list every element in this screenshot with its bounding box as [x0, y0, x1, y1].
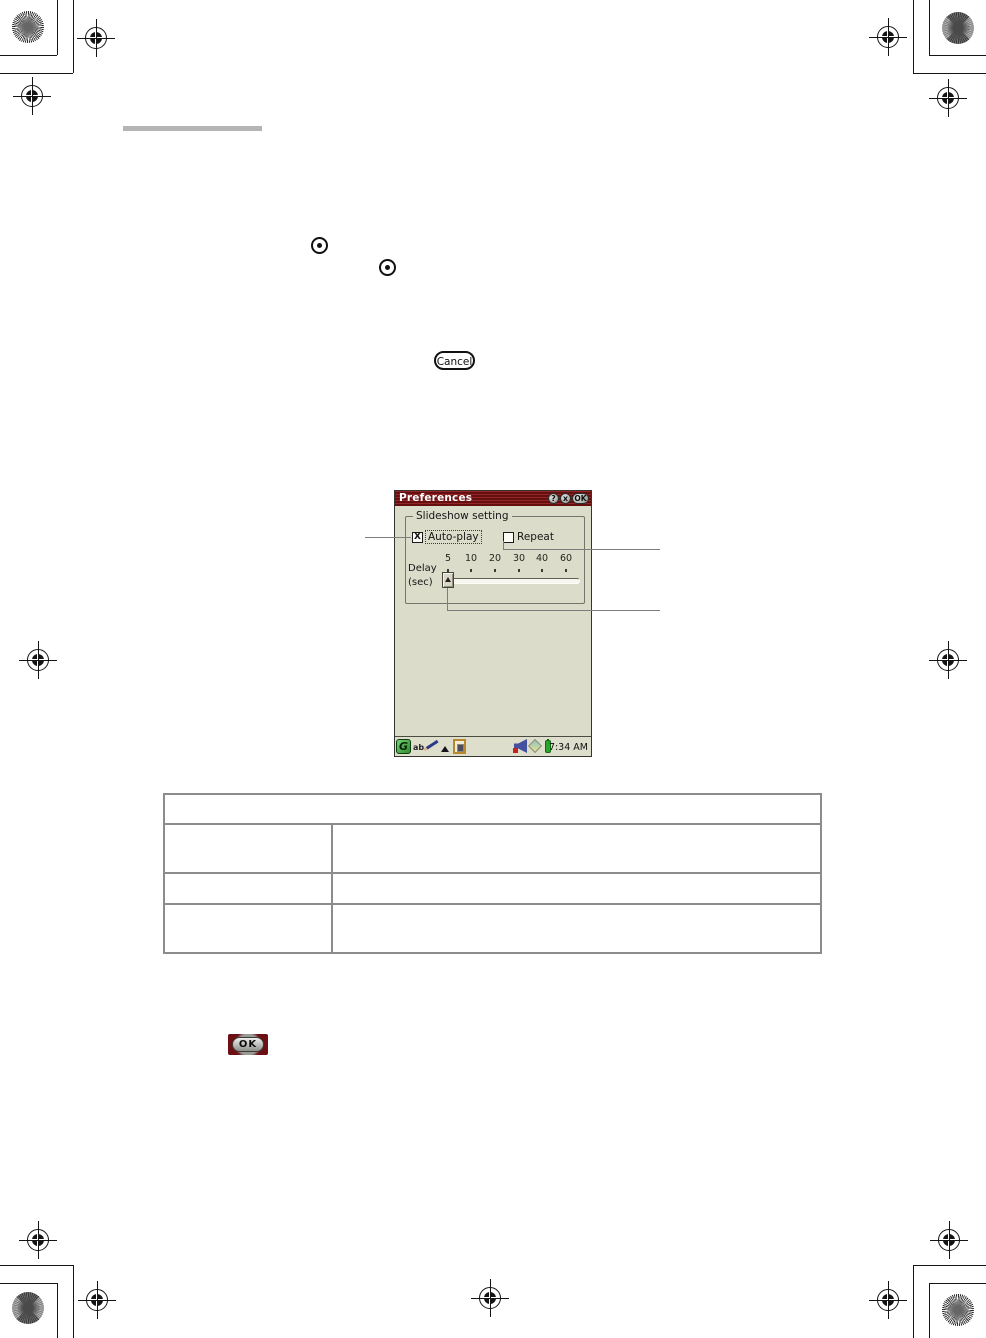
crop-mark — [0, 73, 73, 74]
autoplay-checkbox[interactable]: X — [412, 532, 423, 543]
autoplay-label[interactable]: Auto-play — [425, 530, 482, 544]
callout-line-repeat — [503, 549, 660, 550]
callout-line-slider — [447, 588, 448, 611]
crop-mark — [57, 1283, 58, 1338]
table-row — [165, 905, 820, 952]
callout-line-autoplay — [365, 537, 411, 538]
registration-mark — [869, 1281, 907, 1319]
manual-page: Cancel Preferences ? x OK Slideshow sett… — [0, 0, 986, 1338]
slider-tick — [518, 569, 520, 572]
crop-mark — [0, 1265, 73, 1266]
table-row — [165, 874, 820, 905]
delay-label: Delay — [408, 563, 437, 574]
section-heading-rule — [123, 126, 262, 131]
repeat-checkbox[interactable] — [503, 532, 514, 543]
group-label: Slideshow setting — [413, 510, 512, 522]
tick-label: 30 — [513, 553, 525, 564]
crop-mark — [913, 73, 986, 74]
registration-mark — [77, 19, 115, 57]
crop-mark — [73, 0, 74, 73]
menu-arrow-icon[interactable] — [441, 746, 449, 752]
registration-mark — [930, 1221, 968, 1259]
table-cell — [165, 825, 333, 872]
crop-mark — [0, 1283, 57, 1284]
slider-tick — [470, 569, 472, 572]
dialog-ok-button[interactable]: OK — [572, 493, 589, 504]
registration-mark — [78, 1281, 116, 1319]
slider-tick — [565, 569, 567, 572]
crop-mark — [57, 0, 58, 55]
crop-mark — [73, 1265, 74, 1338]
crop-mark — [929, 1283, 986, 1284]
close-icon[interactable]: x — [560, 493, 571, 504]
reference-table — [163, 793, 822, 954]
table-cell — [333, 874, 820, 903]
registration-mark — [929, 79, 967, 117]
color-calibration-mark — [942, 12, 974, 44]
crop-mark — [929, 1283, 930, 1338]
pen-icon[interactable] — [423, 740, 438, 751]
table-cell — [333, 905, 820, 952]
delay-slider-thumb[interactable] — [442, 572, 454, 588]
help-icon[interactable]: ? — [548, 493, 559, 504]
crop-mark — [913, 1265, 914, 1338]
crop-mark — [0, 55, 57, 56]
crop-mark — [929, 0, 930, 55]
radio-selected-icon[interactable] — [311, 237, 328, 254]
slider-tick — [494, 569, 496, 572]
status-time[interactable]: 7:34 AM — [549, 742, 588, 753]
registration-mark — [869, 18, 907, 56]
crop-mark — [913, 1265, 986, 1266]
tick-label: 40 — [536, 553, 548, 564]
repeat-label[interactable]: Repeat — [517, 531, 554, 543]
registration-mark — [471, 1279, 509, 1317]
dialog-statusbar: G ab 7:34 AM — [395, 736, 591, 756]
graffiti-icon[interactable]: G — [396, 739, 411, 754]
callout-line-slider — [447, 610, 660, 611]
color-calibration-mark — [12, 1292, 44, 1324]
preferences-dialog: Preferences ? x OK Slideshow setting X A… — [394, 490, 592, 757]
table-cell — [165, 905, 333, 952]
color-calibration-mark — [12, 11, 44, 43]
table-cell — [333, 825, 820, 872]
tick-label: 10 — [465, 553, 477, 564]
cancel-button[interactable]: Cancel — [434, 351, 475, 370]
tick-label: 20 — [489, 553, 501, 564]
slider-tick — [541, 569, 543, 572]
delay-slider[interactable] — [444, 578, 580, 584]
crop-mark — [929, 55, 986, 56]
thumb-arrow-icon — [445, 577, 451, 582]
ok-button-image[interactable]: OK — [228, 1034, 268, 1055]
registration-mark — [19, 1221, 57, 1259]
memory-stick-icon[interactable] — [528, 739, 542, 753]
ok-button-label: OK — [232, 1037, 264, 1052]
speaker-mute-icon — [513, 748, 518, 753]
table-header — [165, 795, 820, 825]
tick-label: 5 — [445, 553, 451, 564]
keyboard-icon[interactable] — [453, 739, 466, 754]
color-calibration-mark — [942, 1294, 974, 1326]
registration-mark — [19, 641, 57, 679]
registration-mark — [929, 641, 967, 679]
table-row — [165, 825, 820, 874]
table-cell — [165, 874, 333, 903]
tick-label: 60 — [560, 553, 572, 564]
dialog-title: Preferences — [399, 492, 472, 504]
dialog-titlebar: Preferences ? x OK — [395, 491, 591, 506]
delay-unit-label: (sec) — [408, 577, 433, 588]
abc-input-label[interactable]: ab — [413, 743, 424, 752]
radio-selected-icon[interactable] — [379, 259, 396, 276]
registration-mark — [13, 77, 51, 115]
crop-mark — [913, 0, 914, 73]
